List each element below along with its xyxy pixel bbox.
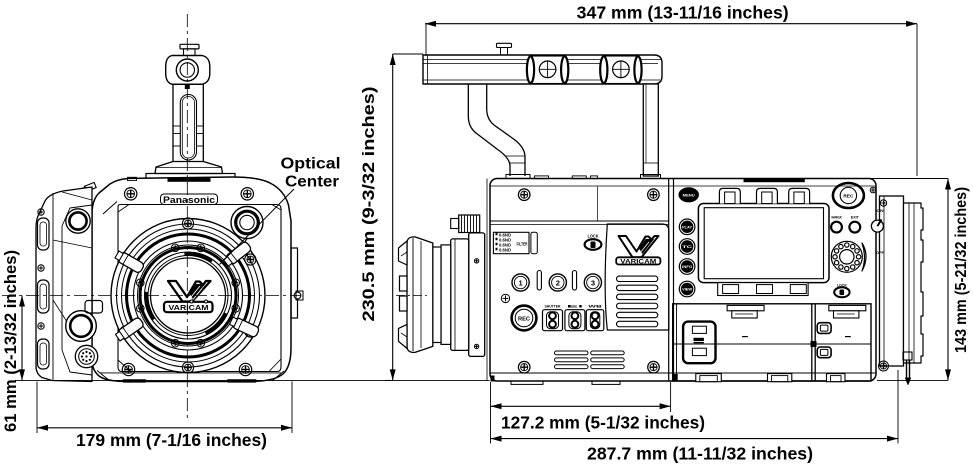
svg-text:3: 3 — [591, 278, 595, 287]
svg-text:VIEW: VIEW — [682, 288, 693, 292]
svg-text:287.7 mm (11-11/32 inches): 287.7 mm (11-11/32 inches) — [587, 444, 813, 464]
svg-text:MARKER: MARKER — [832, 216, 842, 220]
svg-text:SHUTTER: SHUTTER — [545, 305, 561, 309]
svg-text:EI: EI — [567, 305, 583, 309]
svg-text:VARICAM: VARICAM — [169, 305, 209, 312]
svg-text:TC: TC — [682, 245, 693, 249]
svg-text:0.6ND: 0.6ND — [499, 248, 511, 253]
svg-text:1: 1 — [519, 278, 523, 287]
svg-text:230.5 mm (9-3/32 inches): 230.5 mm (9-3/32 inches) — [359, 87, 378, 322]
svg-text:OFF: OFF — [876, 251, 885, 255]
svg-text:INFO: INFO — [682, 265, 692, 269]
svg-text:REC: REC — [843, 194, 853, 199]
svg-text:61 mm (2-13/32 inches): 61 mm (2-13/32 inches) — [2, 250, 20, 432]
svg-text:127.2 mm (5-1/32 inches): 127.2 mm (5-1/32 inches) — [501, 413, 705, 433]
svg-text:143 mm (5-21/32 inches): 143 mm (5-21/32 inches) — [953, 187, 970, 353]
svg-text:FILTER: FILTER — [517, 242, 528, 247]
svg-text:ON: ON — [877, 209, 885, 213]
svg-text:Panasonic: Panasonic — [163, 195, 215, 206]
svg-text:LOCK: LOCK — [588, 234, 600, 239]
svg-text:179 mm (7-1/16 inches): 179 mm (7-1/16 inches) — [76, 430, 267, 450]
svg-text:PLAY: PLAY — [682, 225, 693, 229]
svg-text:Optical: Optical — [281, 156, 341, 173]
svg-text:MENU: MENU — [683, 193, 695, 197]
svg-text:EXIT: EXIT — [851, 216, 859, 220]
svg-text:VARICAM: VARICAM — [620, 259, 656, 265]
svg-text:2: 2 — [556, 278, 560, 287]
svg-text:347 mm (13-11/16 inches): 347 mm (13-11/16 inches) — [577, 3, 789, 23]
svg-text:REC: REC — [518, 317, 530, 323]
svg-text:WB: WB — [588, 305, 602, 309]
svg-text:Center: Center — [285, 174, 339, 191]
